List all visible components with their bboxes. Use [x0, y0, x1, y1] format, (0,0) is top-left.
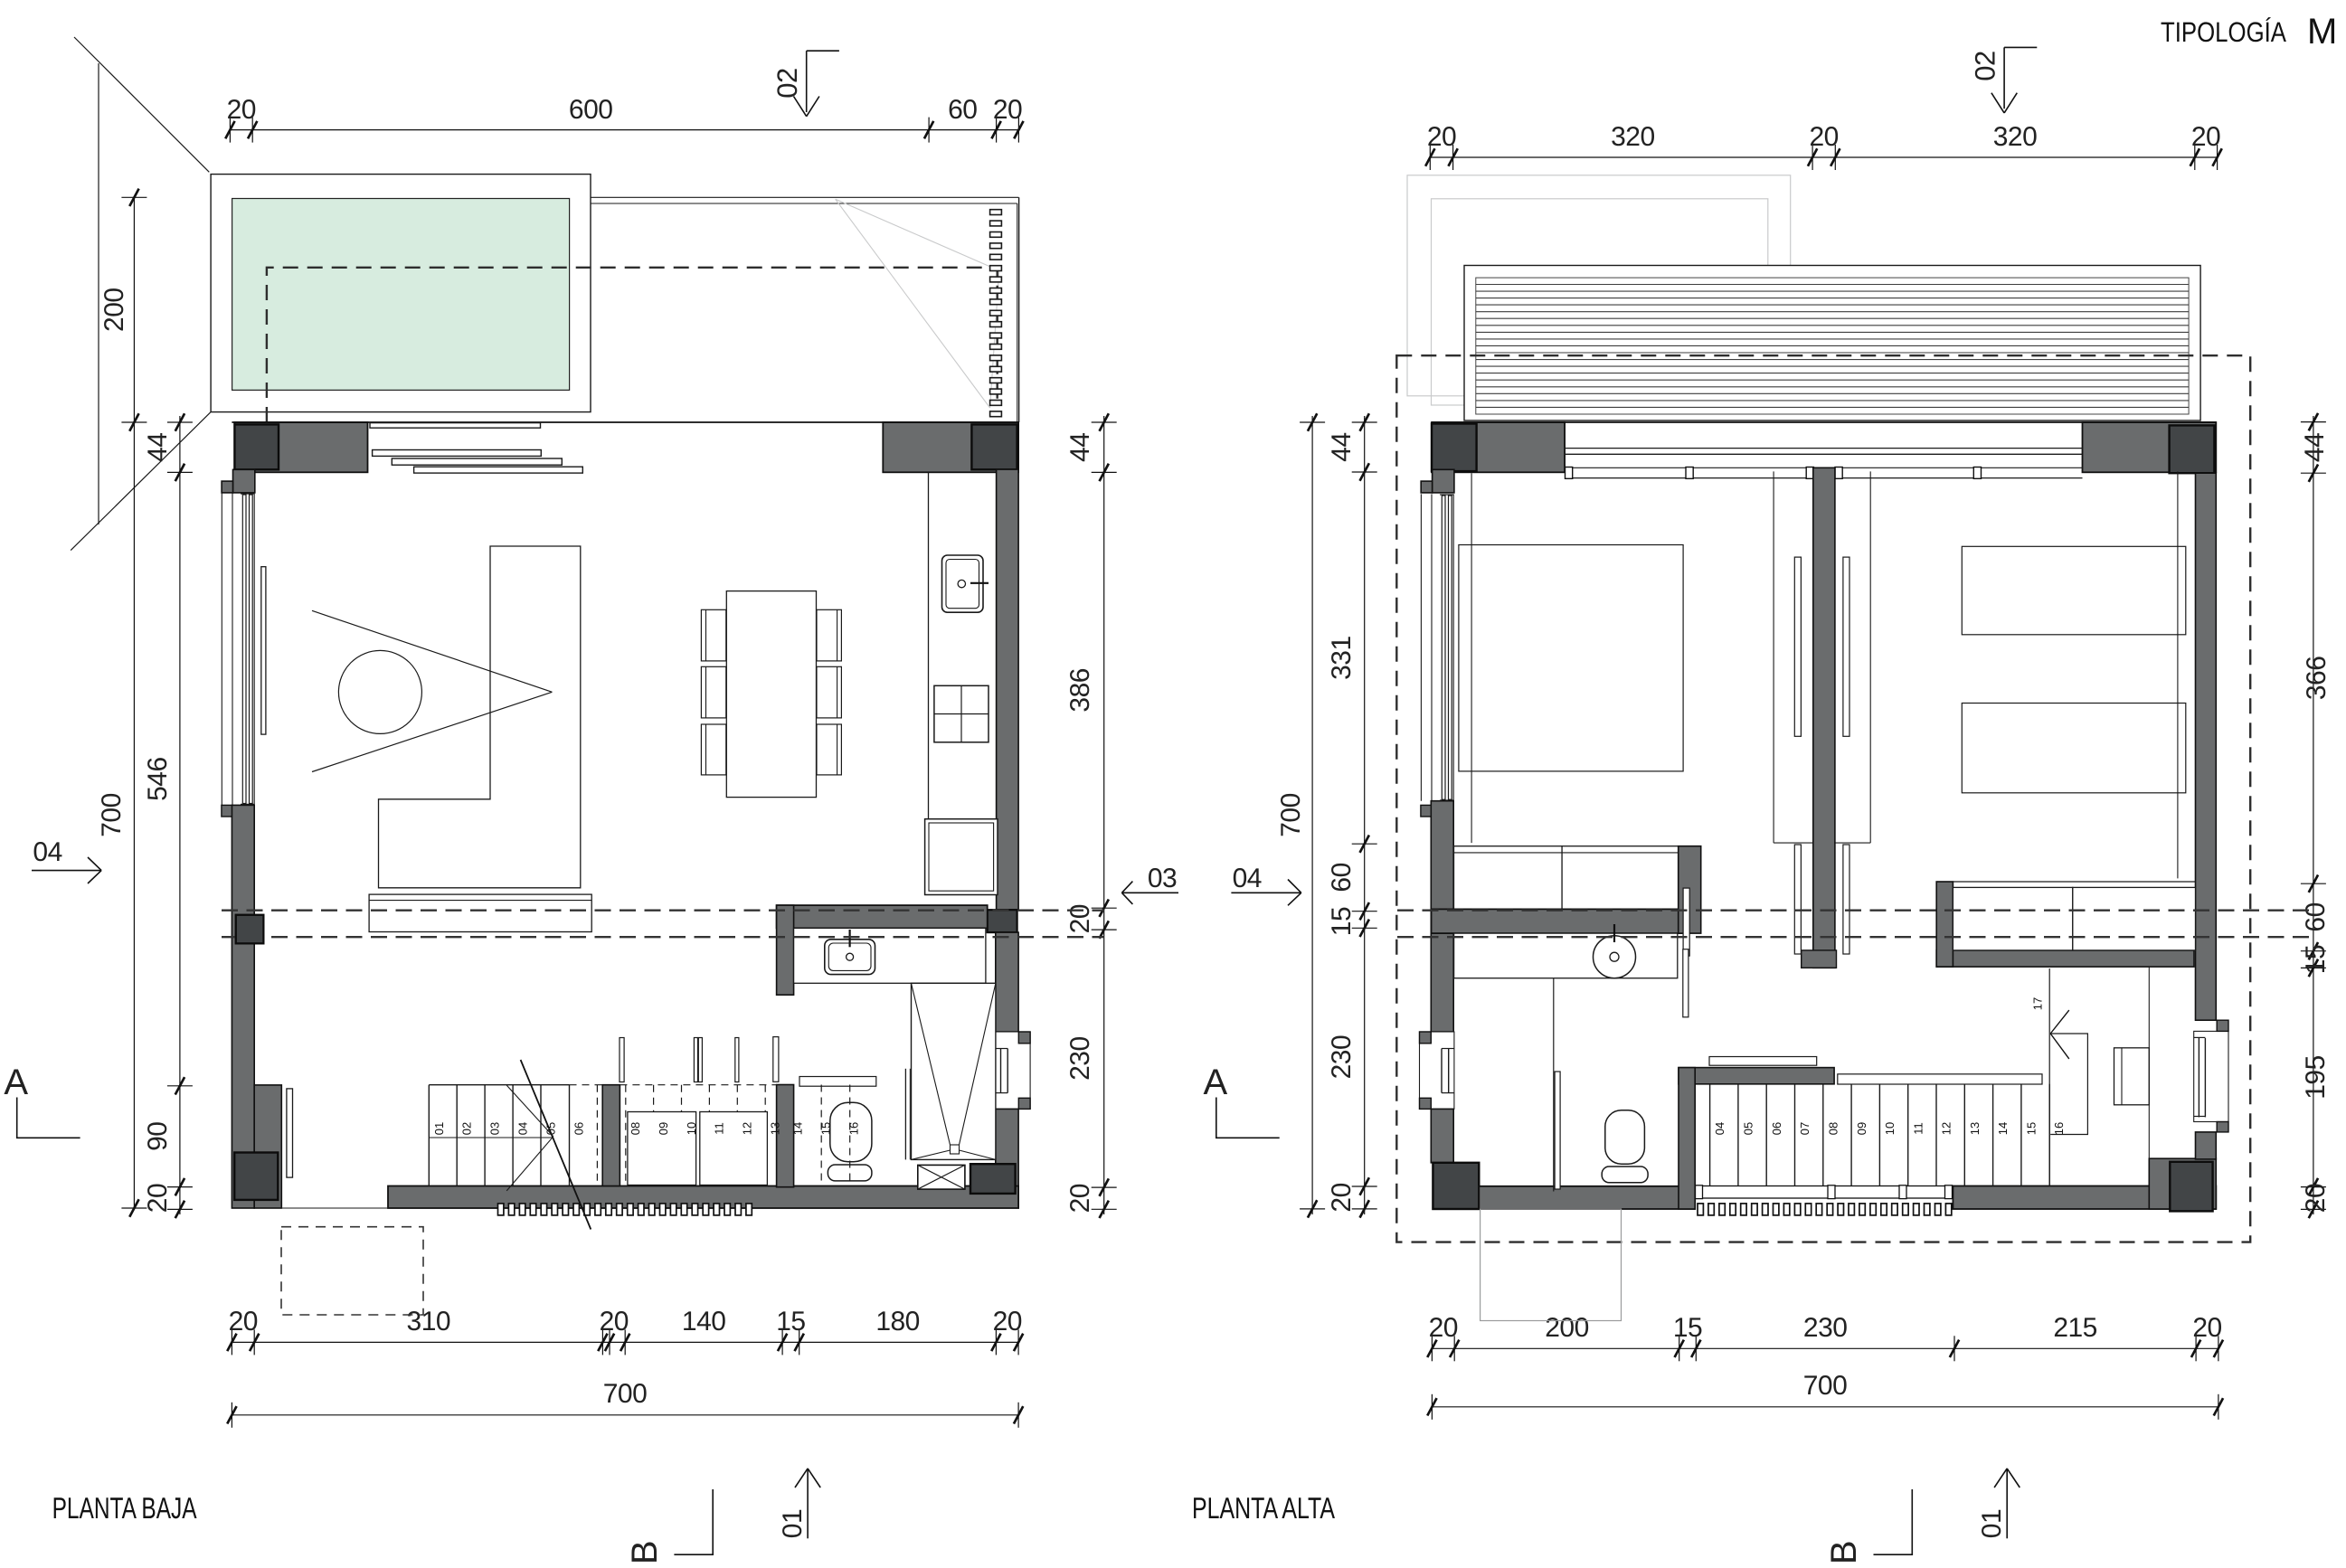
svg-text:90: 90	[143, 1122, 173, 1151]
svg-text:08: 08	[1826, 1122, 1840, 1135]
svg-text:44: 44	[1065, 433, 1095, 462]
svg-text:15: 15	[818, 1122, 832, 1135]
svg-text:16: 16	[847, 1122, 860, 1135]
svg-text:44: 44	[143, 433, 173, 462]
svg-text:09: 09	[657, 1122, 670, 1135]
svg-text:200: 200	[1545, 1313, 1589, 1343]
svg-text:180: 180	[875, 1307, 920, 1337]
svg-text:12: 12	[1940, 1122, 1953, 1135]
svg-text:01: 01	[432, 1122, 446, 1135]
svg-text:B: B	[1824, 1541, 1864, 1564]
svg-text:44: 44	[2300, 433, 2330, 462]
svg-text:20: 20	[229, 1307, 258, 1337]
svg-text:20: 20	[993, 95, 1022, 125]
svg-text:M: M	[2307, 12, 2337, 52]
svg-text:230: 230	[1065, 1036, 1095, 1081]
svg-text:02: 02	[460, 1122, 474, 1135]
svg-text:20: 20	[600, 1307, 629, 1337]
svg-text:200: 200	[99, 288, 129, 332]
svg-text:700: 700	[1276, 793, 1306, 837]
svg-text:20: 20	[2301, 1184, 2331, 1213]
svg-text:600: 600	[569, 95, 613, 125]
svg-text:14: 14	[1996, 1122, 2010, 1135]
svg-text:11: 11	[713, 1122, 726, 1135]
svg-text:15: 15	[1673, 1313, 1702, 1343]
svg-text:03: 03	[1148, 864, 1177, 893]
svg-text:20: 20	[143, 1184, 173, 1213]
svg-text:230: 230	[1803, 1313, 1848, 1343]
svg-text:02: 02	[1970, 51, 2001, 80]
svg-text:20: 20	[1427, 122, 1456, 152]
svg-text:14: 14	[790, 1122, 804, 1135]
svg-text:12: 12	[741, 1122, 754, 1135]
svg-text:546: 546	[143, 757, 173, 801]
svg-text:700: 700	[97, 793, 127, 837]
svg-text:15: 15	[776, 1307, 805, 1337]
svg-text:05: 05	[1742, 1122, 1755, 1135]
svg-text:10: 10	[685, 1122, 698, 1135]
svg-text:03: 03	[488, 1122, 502, 1135]
svg-text:44: 44	[1327, 432, 1357, 461]
svg-text:140: 140	[682, 1307, 726, 1337]
svg-text:230: 230	[1327, 1035, 1357, 1080]
svg-text:13: 13	[1968, 1122, 1982, 1135]
svg-text:07: 07	[1798, 1122, 1812, 1135]
svg-text:20: 20	[227, 95, 256, 125]
svg-text:A: A	[1204, 1063, 1228, 1102]
svg-text:17: 17	[2031, 997, 2045, 1010]
svg-text:60: 60	[948, 95, 977, 125]
svg-text:11: 11	[1911, 1122, 1925, 1135]
svg-text:TIPOLOGÍA: TIPOLOGÍA	[2161, 16, 2286, 48]
svg-text:B: B	[625, 1541, 665, 1564]
svg-text:20: 20	[2191, 122, 2220, 152]
svg-text:10: 10	[1883, 1122, 1897, 1135]
svg-text:06: 06	[1770, 1122, 1783, 1135]
svg-text:04: 04	[1713, 1122, 1726, 1135]
svg-text:20: 20	[1327, 1183, 1357, 1212]
svg-text:700: 700	[603, 1379, 648, 1409]
svg-text:60: 60	[1327, 863, 1357, 892]
svg-text:13: 13	[769, 1122, 782, 1135]
svg-text:PLANTA BAJA: PLANTA BAJA	[52, 1491, 197, 1525]
svg-text:20: 20	[1065, 904, 1095, 933]
svg-text:331: 331	[1327, 636, 1357, 680]
svg-text:04: 04	[516, 1122, 530, 1135]
svg-text:15: 15	[2025, 1122, 2039, 1135]
svg-text:PLANTA ALTA: PLANTA ALTA	[1192, 1491, 1335, 1525]
svg-text:20: 20	[2192, 1313, 2221, 1343]
svg-text:04: 04	[1233, 864, 1262, 893]
svg-text:09: 09	[1855, 1122, 1868, 1135]
svg-text:20: 20	[1429, 1313, 1458, 1343]
svg-text:195: 195	[2301, 1055, 2331, 1100]
svg-text:04: 04	[33, 837, 61, 867]
svg-text:15: 15	[1327, 907, 1357, 936]
svg-text:310: 310	[407, 1307, 451, 1337]
svg-text:215: 215	[2053, 1313, 2097, 1343]
svg-text:20: 20	[993, 1307, 1022, 1337]
svg-text:320: 320	[1993, 122, 2038, 152]
svg-text:15: 15	[2301, 945, 2331, 974]
svg-text:01: 01	[778, 1509, 808, 1538]
svg-text:16: 16	[2052, 1122, 2066, 1135]
svg-text:700: 700	[1803, 1371, 1848, 1401]
svg-text:02: 02	[771, 68, 803, 98]
svg-text:386: 386	[1065, 668, 1095, 713]
svg-text:60: 60	[2301, 902, 2331, 931]
svg-text:20: 20	[1810, 122, 1839, 152]
svg-text:20: 20	[1065, 1184, 1095, 1213]
svg-text:A: A	[4, 1063, 28, 1102]
svg-text:366: 366	[2302, 656, 2332, 701]
svg-text:320: 320	[1611, 122, 1655, 152]
svg-text:06: 06	[572, 1122, 585, 1135]
svg-text:01: 01	[1977, 1509, 2007, 1538]
svg-text:08: 08	[629, 1122, 642, 1135]
